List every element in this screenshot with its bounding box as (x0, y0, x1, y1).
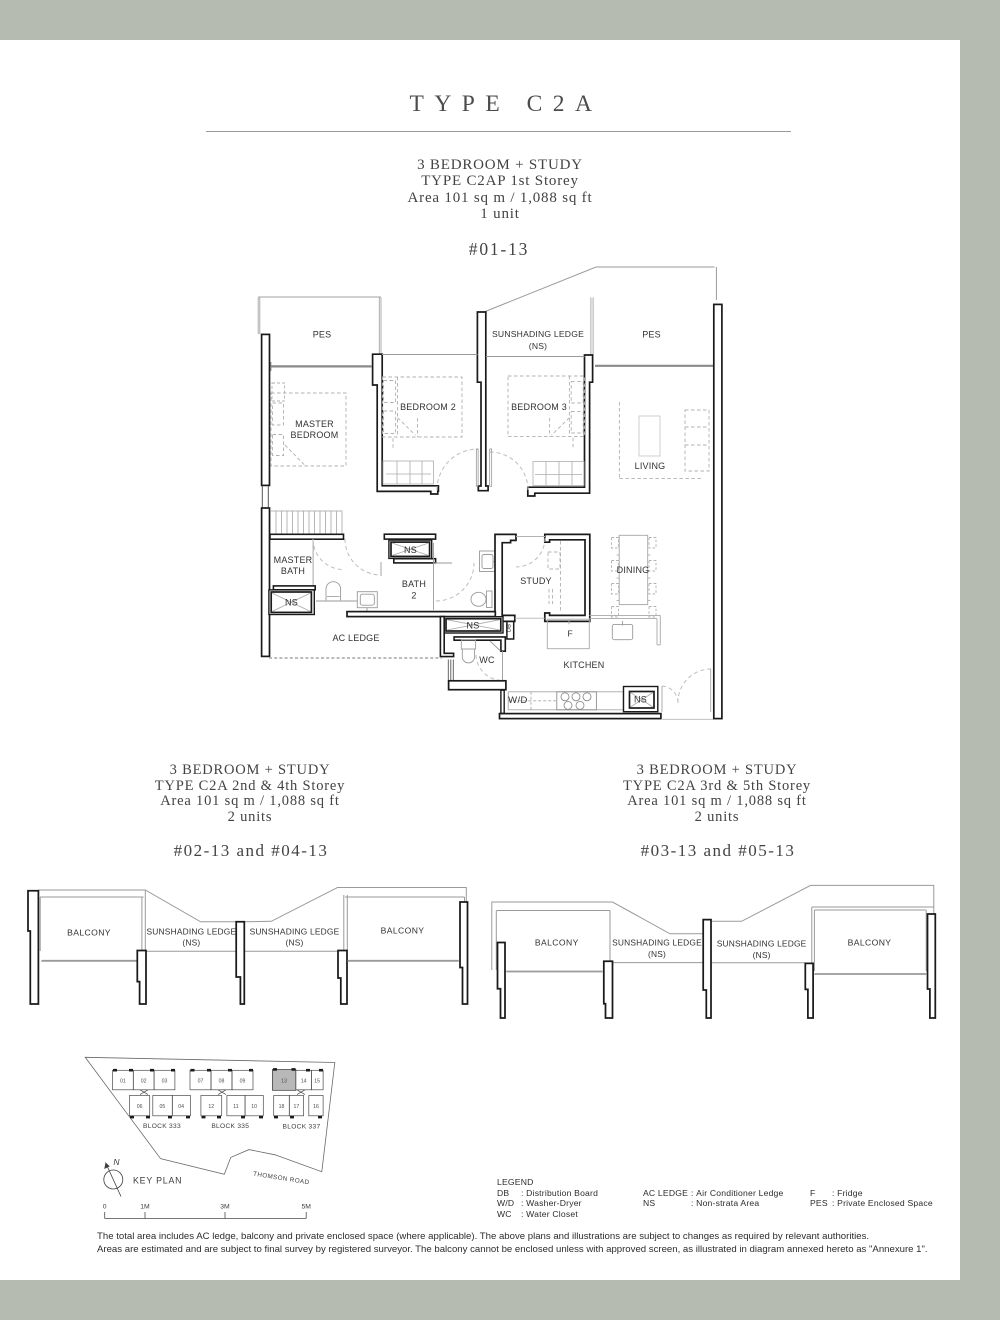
svg-text:3M: 3M (220, 1204, 230, 1211)
svg-text:BALCONY: BALCONY (381, 926, 425, 936)
svg-text:W/D: W/D (508, 695, 528, 706)
svg-text:BEDROOM 3: BEDROOM 3 (511, 402, 567, 412)
svg-text:SUNSHADING LEDGE: SUNSHADING LEDGE (717, 939, 807, 949)
svg-text:BEDROOM: BEDROOM (291, 430, 339, 440)
svg-text:WC: WC (479, 655, 495, 665)
svg-text:SUNSHADING LEDGE: SUNSHADING LEDGE (147, 927, 237, 937)
svg-text:KEY PLAN: KEY PLAN (133, 1176, 182, 1186)
svg-text:DINING: DINING (617, 565, 650, 575)
svg-text:06: 06 (137, 1104, 143, 1110)
svg-text:10: 10 (251, 1104, 257, 1110)
svg-text:DB: DB (507, 624, 513, 632)
svg-text:NS: NS (285, 598, 298, 608)
svg-text:17: 17 (294, 1104, 300, 1110)
svg-text:F: F (568, 629, 574, 639)
svg-text:13: 13 (281, 1079, 287, 1085)
svg-text:SUNSHADING LEDGE: SUNSHADING LEDGE (250, 927, 340, 937)
svg-text:08: 08 (219, 1079, 225, 1085)
svg-text:03: 03 (162, 1079, 168, 1085)
svg-text:07: 07 (198, 1079, 204, 1085)
svg-text:01: 01 (120, 1079, 126, 1085)
svg-text:MASTER: MASTER (274, 555, 313, 565)
svg-text:15: 15 (314, 1079, 320, 1085)
svg-text:STUDY: STUDY (520, 576, 552, 586)
svg-text:SUNSHADING LEDGE: SUNSHADING LEDGE (492, 329, 584, 339)
svg-text:04: 04 (178, 1104, 184, 1110)
svg-text:14: 14 (301, 1079, 307, 1085)
svg-text:2: 2 (411, 591, 416, 601)
svg-text:BALCONY: BALCONY (535, 938, 579, 948)
svg-text:1M: 1M (140, 1204, 150, 1211)
svg-text:BALCONY: BALCONY (67, 927, 111, 937)
svg-text:NS: NS (634, 695, 647, 705)
svg-text:16: 16 (313, 1104, 319, 1110)
svg-text:09: 09 (240, 1079, 246, 1085)
svg-text:BLOCK 333: BLOCK 333 (143, 1123, 181, 1130)
svg-text:BATH: BATH (281, 566, 305, 576)
svg-text:BEDROOM 2: BEDROOM 2 (400, 402, 456, 412)
svg-text:05: 05 (160, 1104, 166, 1110)
svg-text:N: N (113, 1157, 120, 1167)
svg-text:THOMSON ROAD: THOMSON ROAD (253, 1171, 310, 1187)
svg-text:0: 0 (103, 1204, 107, 1211)
svg-text:18: 18 (279, 1104, 285, 1110)
svg-text:12: 12 (208, 1104, 214, 1110)
svg-text:02: 02 (141, 1079, 147, 1085)
svg-text:(NS): (NS) (529, 341, 547, 351)
svg-text:11: 11 (233, 1104, 238, 1110)
svg-text:BALCONY: BALCONY (848, 938, 892, 948)
svg-text:PES: PES (313, 330, 332, 340)
svg-text:(NS): (NS) (648, 949, 666, 959)
svg-text:BLOCK 335: BLOCK 335 (211, 1123, 249, 1130)
svg-text:NS: NS (467, 621, 480, 631)
svg-text:5M: 5M (301, 1204, 311, 1211)
svg-text:NS: NS (404, 545, 417, 555)
svg-text:(NS): (NS) (285, 938, 303, 948)
svg-text:LIVING: LIVING (635, 461, 666, 471)
svg-text:(NS): (NS) (753, 950, 771, 960)
svg-text:(NS): (NS) (182, 938, 200, 948)
svg-text:PES: PES (642, 330, 661, 340)
svg-text:SUNSHADING LEDGE: SUNSHADING LEDGE (612, 938, 702, 948)
svg-text:MASTER: MASTER (295, 419, 334, 429)
svg-text:KITCHEN: KITCHEN (564, 660, 605, 670)
svg-text:AC LEDGE: AC LEDGE (332, 633, 379, 643)
svg-text:BATH: BATH (402, 579, 426, 589)
svg-text:BLOCK 337: BLOCK 337 (283, 1123, 321, 1130)
